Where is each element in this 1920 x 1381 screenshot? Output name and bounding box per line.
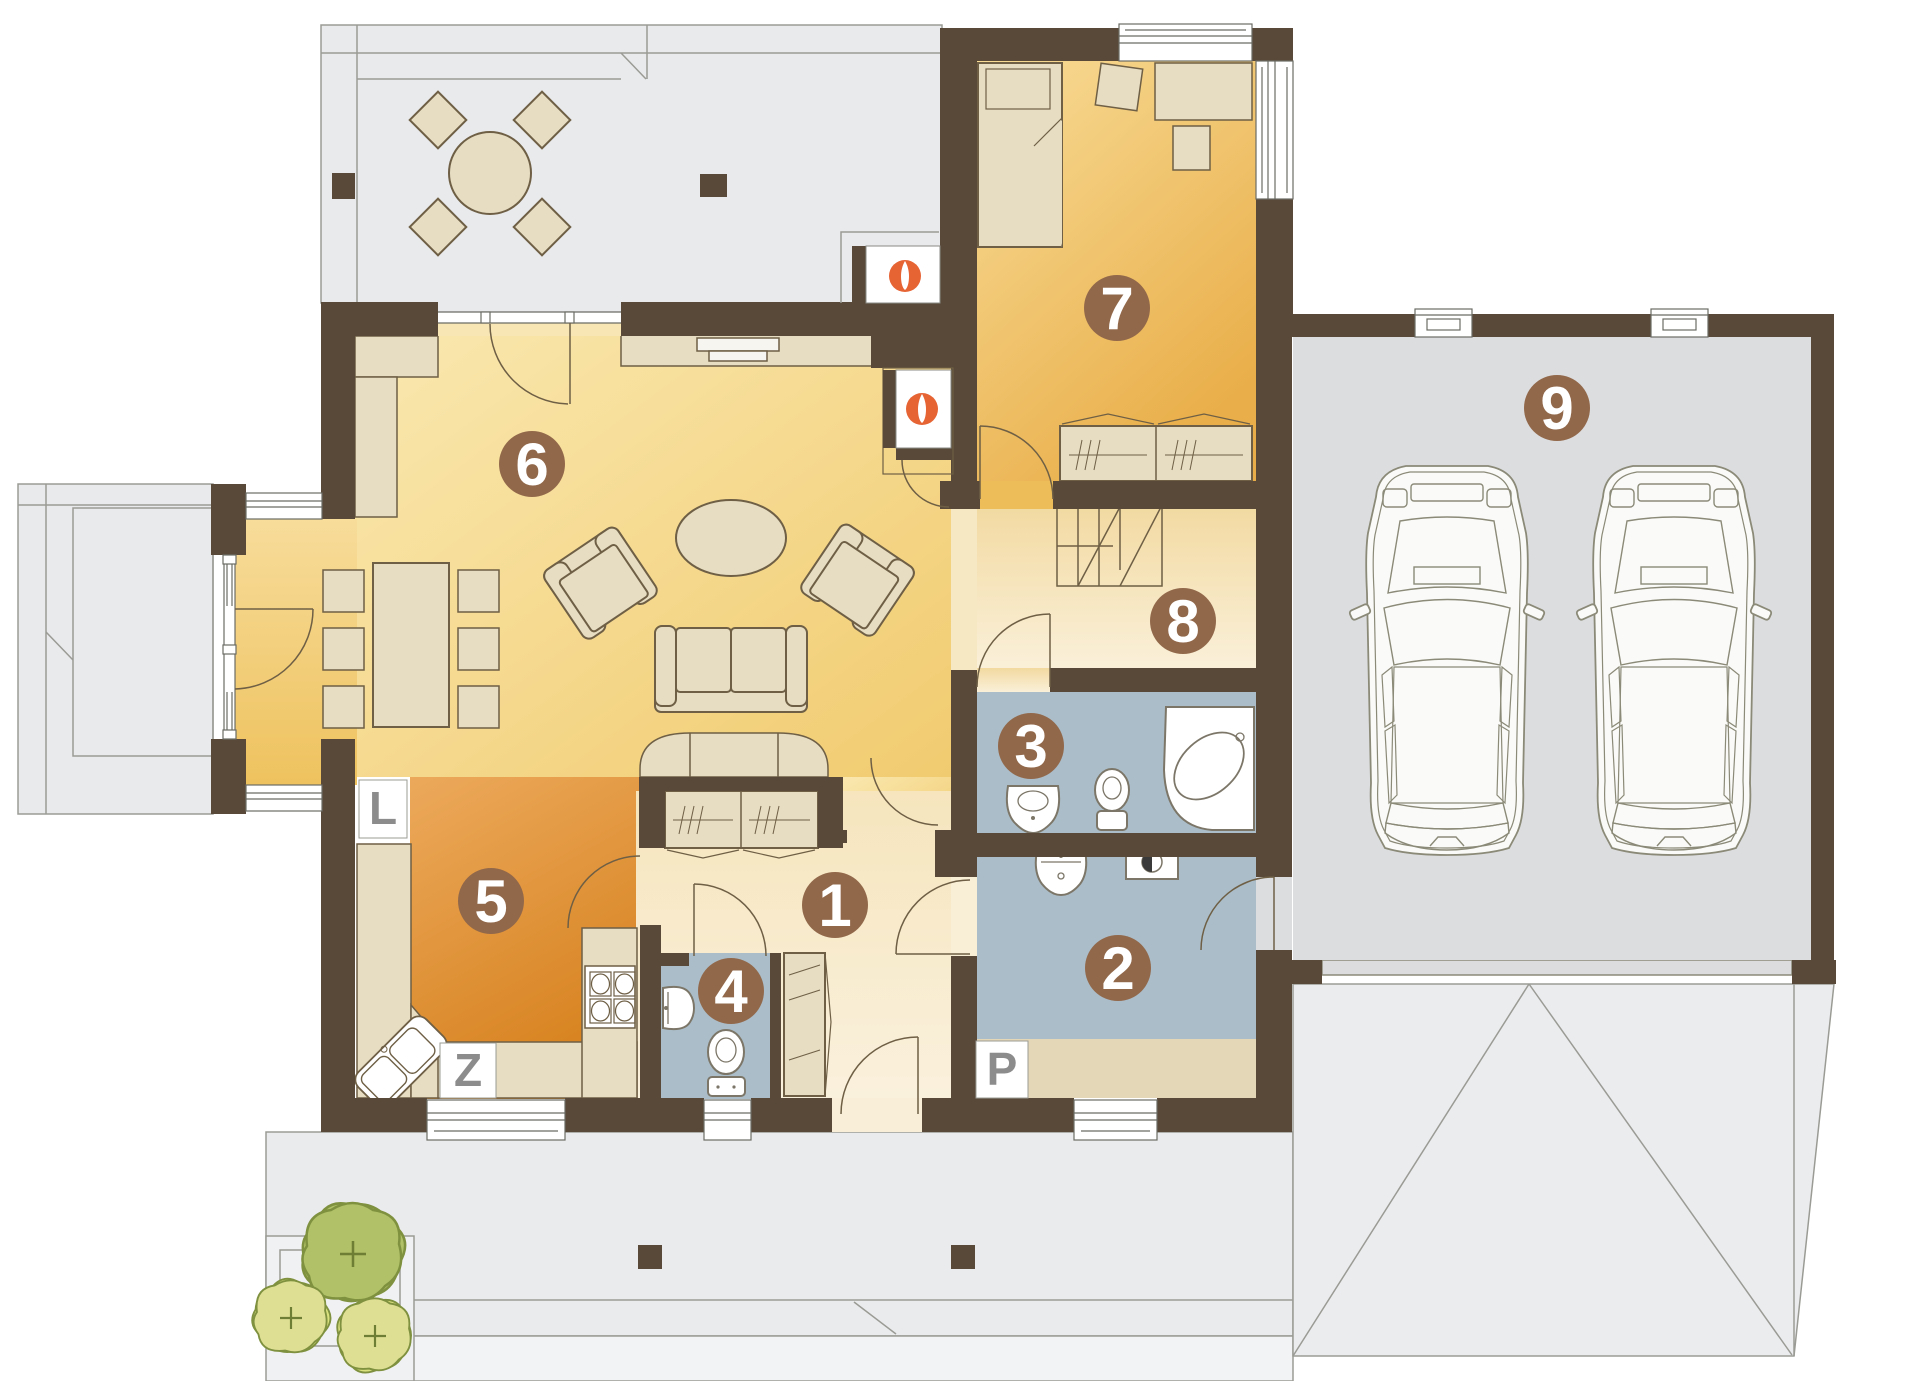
svg-text:7: 7 — [1100, 275, 1133, 342]
svg-text:8: 8 — [1166, 588, 1199, 655]
svg-text:5: 5 — [474, 868, 507, 935]
svg-text:6: 6 — [515, 431, 548, 498]
svg-text:4: 4 — [714, 958, 748, 1025]
svg-text:P: P — [987, 1043, 1018, 1095]
svg-text:Z: Z — [454, 1044, 482, 1096]
svg-text:3: 3 — [1014, 713, 1047, 780]
svg-text:2: 2 — [1101, 935, 1134, 1002]
svg-text:1: 1 — [818, 872, 851, 939]
svg-text:9: 9 — [1540, 375, 1573, 442]
svg-text:L: L — [369, 782, 397, 834]
